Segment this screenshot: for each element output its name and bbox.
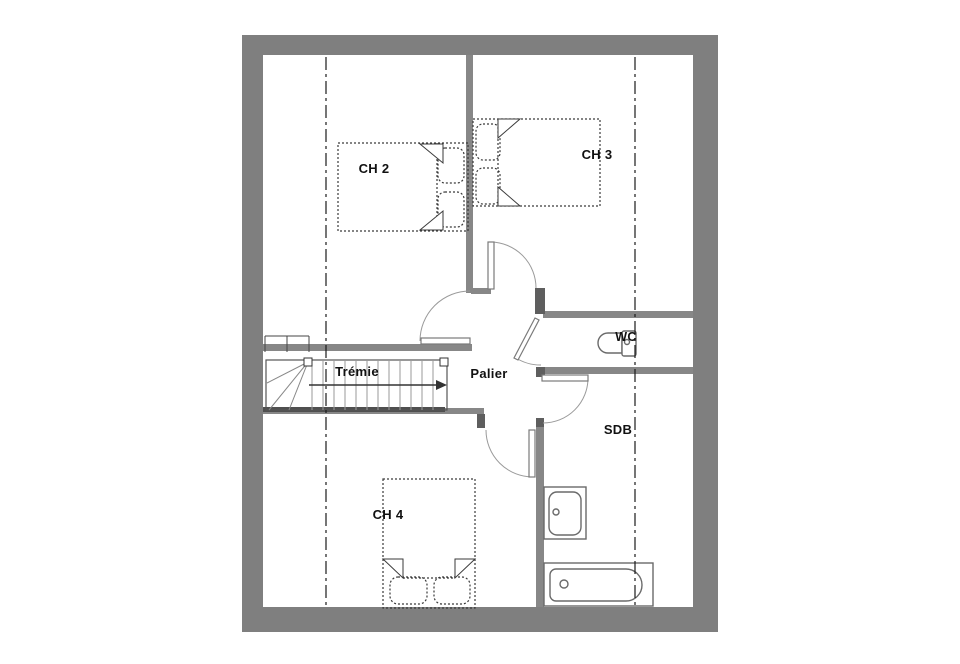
wall-ch2-ch3 bbox=[466, 55, 473, 293]
wall-wc-bottom bbox=[543, 367, 693, 374]
ch3-door-leaf bbox=[488, 242, 494, 289]
ch4-door-leaf bbox=[529, 430, 535, 477]
outer-wall-bottom bbox=[242, 607, 718, 632]
stair-post-right bbox=[440, 358, 448, 366]
room-label-ch3: CH 3 bbox=[582, 147, 613, 162]
ch2-door-leaf bbox=[421, 338, 470, 344]
room-label-sdb: SDB bbox=[604, 422, 632, 437]
room-label-ch2: CH 2 bbox=[359, 161, 390, 176]
outer-wall-top bbox=[242, 35, 718, 55]
room-label-ch4: CH 4 bbox=[373, 507, 404, 522]
floor-plan-canvas: CH 2 CH 3 CH 4 Trémie Palier WC SDB bbox=[0, 0, 960, 664]
room-label-palier: Palier bbox=[470, 366, 507, 381]
wall-ch4-sdb bbox=[536, 420, 544, 607]
room-label-tremie: Trémie bbox=[335, 364, 379, 379]
stair-post-left bbox=[304, 358, 312, 366]
stub-ch3-corner bbox=[535, 288, 545, 314]
wall-ch2-bottom bbox=[263, 344, 472, 351]
bathtub-icon bbox=[544, 563, 653, 606]
room-label-wc: WC bbox=[615, 330, 636, 344]
washbasin-icon bbox=[544, 487, 586, 539]
stub-sdb-corner bbox=[536, 418, 544, 427]
outer-wall-left bbox=[242, 55, 263, 607]
sdb-door-leaf bbox=[542, 375, 588, 381]
outer-wall-right bbox=[693, 55, 718, 607]
wall-wc-top bbox=[543, 311, 693, 318]
floor-plan-drawing: CH 2 CH 3 CH 4 Trémie Palier WC SDB bbox=[0, 0, 960, 664]
stub-palier-corner bbox=[477, 414, 485, 428]
